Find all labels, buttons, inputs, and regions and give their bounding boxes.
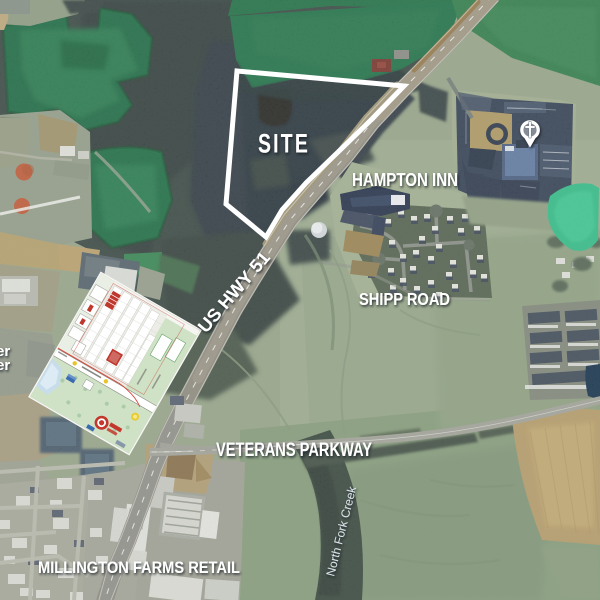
svg-text:VETERANS PARKWAY: VETERANS PARKWAY bbox=[216, 440, 372, 461]
svg-text:SITE: SITE bbox=[258, 129, 310, 159]
svg-text:er: er bbox=[0, 357, 10, 374]
svg-text:MILLINGTON FARMS RETAIL: MILLINGTON FARMS RETAIL bbox=[38, 558, 240, 577]
svg-text:SHIPP ROAD: SHIPP ROAD bbox=[359, 289, 450, 309]
svg-text:HAMPTON INN: HAMPTON INN bbox=[352, 169, 458, 190]
